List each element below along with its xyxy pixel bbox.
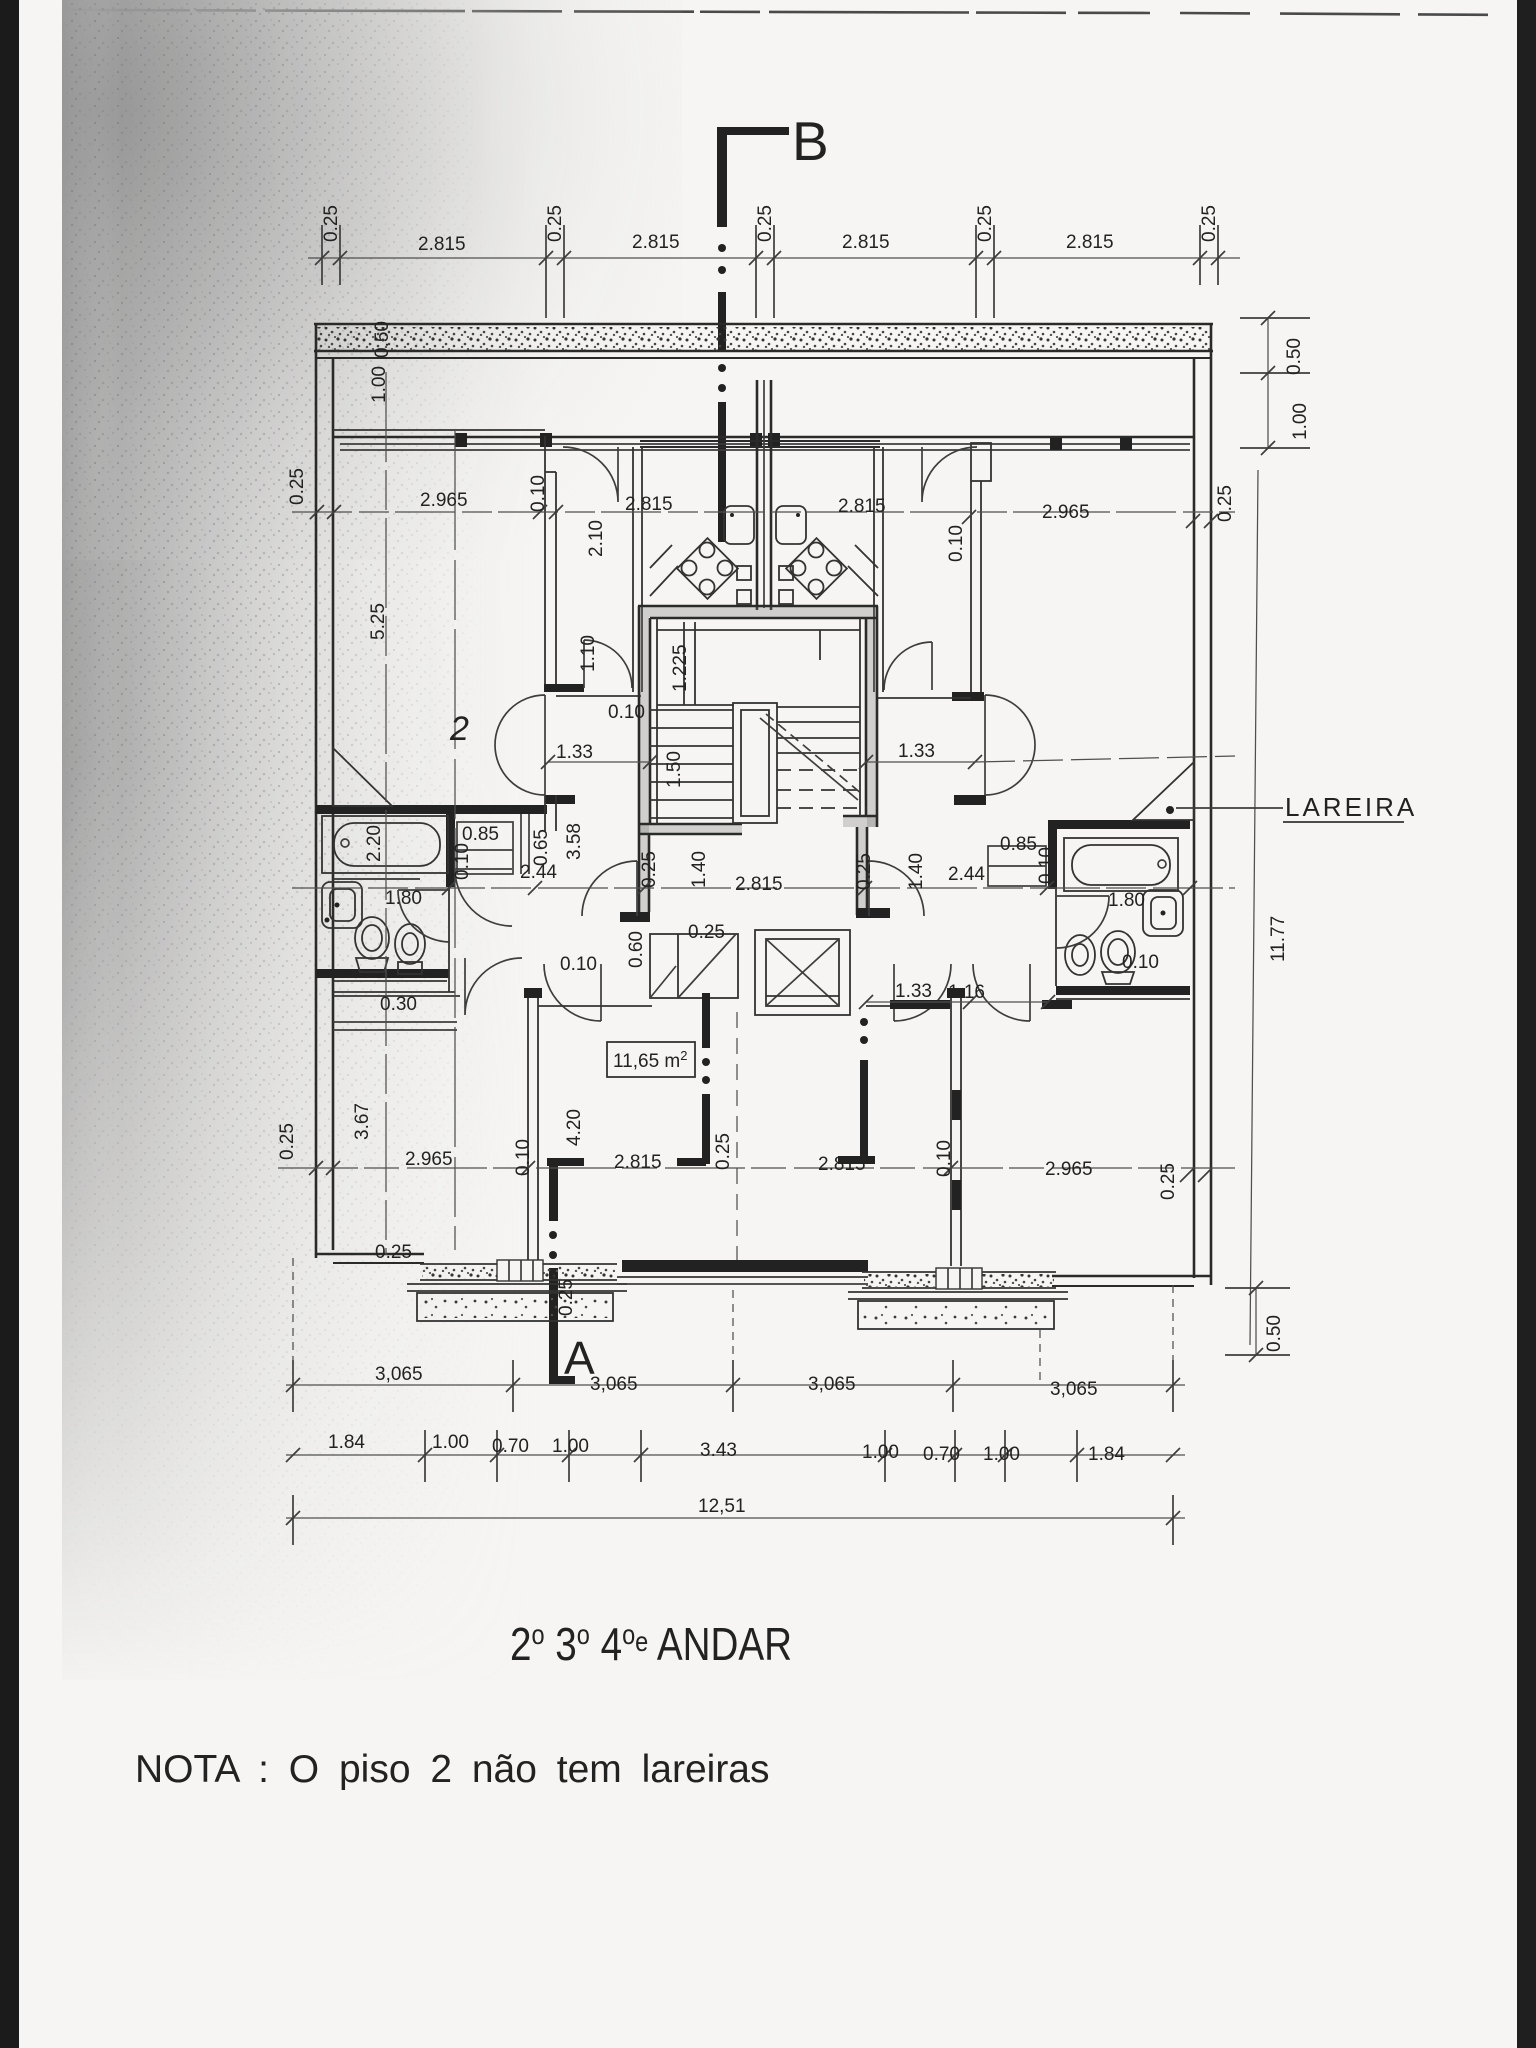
svg-text:2.44: 2.44 <box>520 862 557 883</box>
svg-text:0.50: 0.50 <box>372 321 393 358</box>
svg-text:0.10: 0.10 <box>934 1140 955 1177</box>
svg-text:1.33: 1.33 <box>895 981 932 1002</box>
svg-text:1.80: 1.80 <box>1108 890 1145 911</box>
svg-text:1.84: 1.84 <box>1088 1444 1125 1465</box>
svg-text:2.965: 2.965 <box>420 490 468 511</box>
svg-text:3,065: 3,065 <box>375 1364 423 1385</box>
svg-text:1.84: 1.84 <box>328 1432 365 1453</box>
svg-text:2.815: 2.815 <box>842 232 890 253</box>
svg-text:2.815: 2.815 <box>818 1154 866 1175</box>
svg-text:3.58: 3.58 <box>564 823 585 860</box>
svg-text:0.10: 0.10 <box>946 525 967 562</box>
svg-text:0.50: 0.50 <box>1264 1315 1285 1352</box>
svg-text:0.25: 0.25 <box>688 922 725 943</box>
svg-text:0.70: 0.70 <box>492 1436 529 1457</box>
svg-text:1.16: 1.16 <box>948 982 985 1003</box>
svg-text:0.25: 0.25 <box>854 853 875 890</box>
svg-text:0.25: 0.25 <box>975 205 996 242</box>
svg-text:1.40: 1.40 <box>689 851 710 888</box>
svg-text:2.815: 2.815 <box>614 1152 662 1173</box>
svg-text:1.00: 1.00 <box>983 1444 1020 1465</box>
svg-text:0.10: 0.10 <box>560 954 597 975</box>
svg-text:0.65: 0.65 <box>531 829 552 866</box>
svg-text:0.85: 0.85 <box>1000 834 1037 855</box>
svg-text:2.815: 2.815 <box>418 234 466 255</box>
svg-text:12,51: 12,51 <box>698 1496 746 1517</box>
svg-text:2.965: 2.965 <box>405 1149 453 1170</box>
svg-text:1.00: 1.00 <box>552 1436 589 1457</box>
svg-text:2.815: 2.815 <box>632 232 680 253</box>
svg-text:1.80: 1.80 <box>385 888 422 909</box>
svg-text:2.815: 2.815 <box>625 494 673 515</box>
svg-text:0.10: 0.10 <box>513 1139 534 1176</box>
svg-text:0.25: 0.25 <box>287 468 308 505</box>
svg-text:1.00: 1.00 <box>432 1432 469 1453</box>
svg-text:1.10: 1.10 <box>578 635 599 672</box>
svg-text:11,65 m2: 11,65 m2 <box>613 1048 687 1072</box>
svg-text:0.10: 0.10 <box>608 702 645 723</box>
svg-text:2: 2 <box>449 710 469 748</box>
svg-text:0.30: 0.30 <box>380 994 417 1015</box>
svg-text:2.965: 2.965 <box>1042 502 1090 523</box>
svg-text:4.20: 4.20 <box>564 1109 585 1146</box>
svg-text:2.10: 2.10 <box>586 520 607 557</box>
svg-text:2.815: 2.815 <box>735 874 783 895</box>
svg-text:1.33: 1.33 <box>556 742 593 763</box>
svg-text:0.25: 0.25 <box>1215 485 1236 522</box>
svg-text:0.25: 0.25 <box>277 1123 298 1160</box>
svg-text:0.25: 0.25 <box>755 205 776 242</box>
svg-text:0.10: 0.10 <box>1036 847 1057 884</box>
svg-text:LAREIRA: LAREIRA <box>1285 792 1417 822</box>
svg-text:1.33: 1.33 <box>898 741 935 762</box>
svg-text:0.10: 0.10 <box>1122 952 1159 973</box>
svg-text:2.815: 2.815 <box>838 496 886 517</box>
svg-text:11.77: 11.77 <box>1268 916 1289 962</box>
svg-text:0.85: 0.85 <box>462 824 499 845</box>
svg-text:0.60: 0.60 <box>626 931 647 968</box>
svg-text:0.70: 0.70 <box>923 1444 960 1465</box>
svg-text:2o 3o 4oe ANDAR: 2o 3o 4oe ANDAR <box>510 1619 792 1670</box>
svg-text:0.10: 0.10 <box>452 843 473 880</box>
svg-text:2.815: 2.815 <box>1066 232 1114 253</box>
svg-text:1.225: 1.225 <box>670 644 691 692</box>
svg-text:1.00: 1.00 <box>862 1442 899 1463</box>
svg-text:0.25: 0.25 <box>1158 1163 1179 1200</box>
svg-text:2.20: 2.20 <box>364 825 385 862</box>
svg-text:3.67: 3.67 <box>352 1103 373 1140</box>
svg-text:5.25: 5.25 <box>368 603 389 640</box>
svg-text:3,065: 3,065 <box>808 1374 856 1395</box>
svg-text:0.25: 0.25 <box>545 205 566 242</box>
svg-text:0.25: 0.25 <box>556 1279 577 1316</box>
svg-text:0.25: 0.25 <box>1199 205 1220 242</box>
svg-text:1.00: 1.00 <box>1290 403 1311 440</box>
svg-text:0.50: 0.50 <box>1284 338 1305 375</box>
svg-text:3.43: 3.43 <box>700 1440 737 1461</box>
svg-text:0.25: 0.25 <box>321 205 342 242</box>
svg-text:3,065: 3,065 <box>590 1374 638 1395</box>
svg-text:B: B <box>792 110 829 172</box>
svg-text:0.25: 0.25 <box>375 1242 412 1263</box>
svg-text:NOTA : O piso 2 não tem la: NOTA : O piso 2 não tem lareiras <box>135 1748 770 1791</box>
svg-text:3,065: 3,065 <box>1050 1379 1098 1400</box>
svg-text:0.10: 0.10 <box>528 475 549 512</box>
svg-text:0.25: 0.25 <box>639 851 660 888</box>
svg-text:2.44: 2.44 <box>948 864 985 885</box>
svg-text:0.25: 0.25 <box>713 1133 734 1170</box>
svg-text:1.50: 1.50 <box>664 751 685 788</box>
svg-text:1.00: 1.00 <box>369 366 390 403</box>
svg-text:1.40: 1.40 <box>906 853 927 890</box>
svg-text:2.965: 2.965 <box>1045 1159 1093 1180</box>
